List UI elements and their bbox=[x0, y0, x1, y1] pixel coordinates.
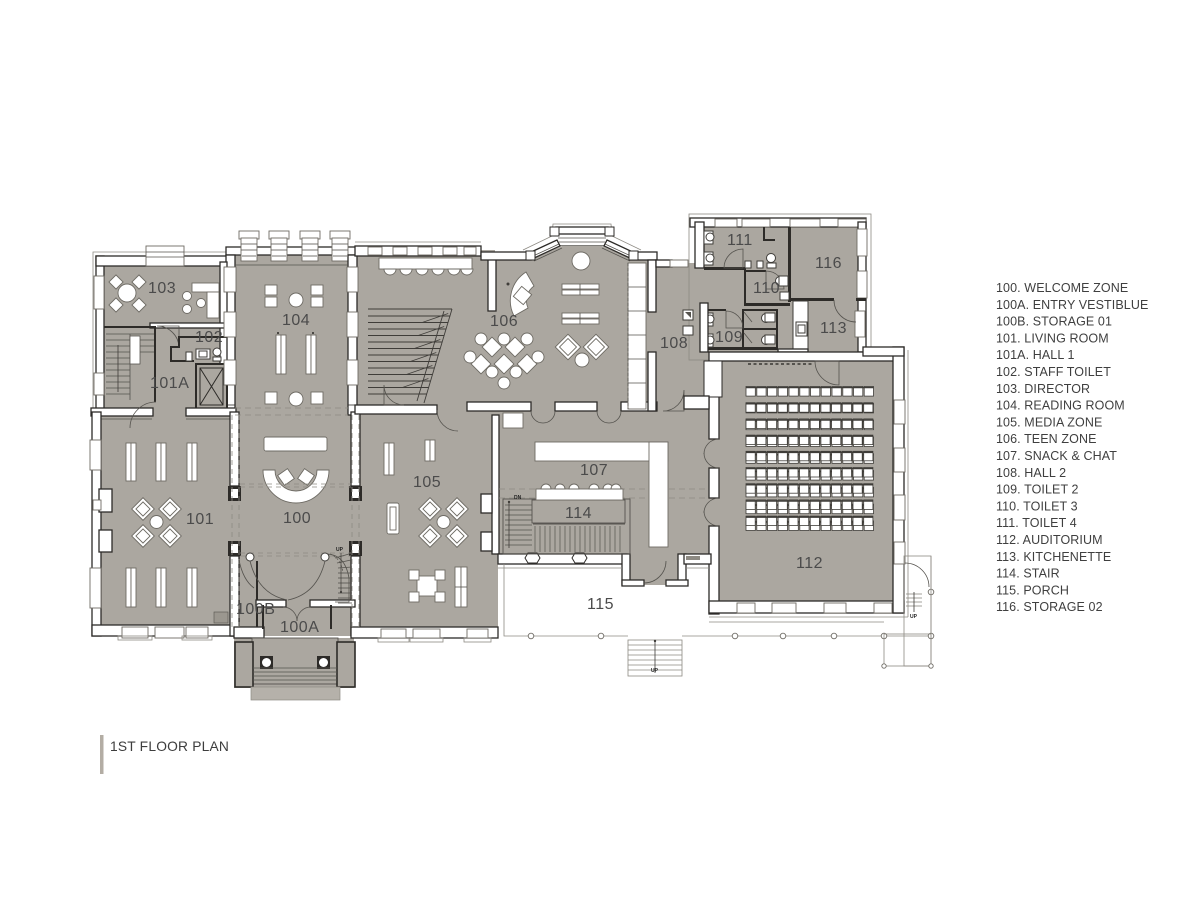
svg-text:104: 104 bbox=[282, 312, 310, 329]
svg-text:100B. STORAGE 01: 100B. STORAGE 01 bbox=[996, 315, 1112, 329]
svg-text:103: 103 bbox=[148, 280, 176, 297]
svg-text:110. TOILET 3: 110. TOILET 3 bbox=[996, 499, 1078, 513]
svg-text:109: 109 bbox=[715, 329, 743, 346]
svg-text:112: 112 bbox=[796, 555, 823, 572]
svg-text:113. KITCHENETTE: 113. KITCHENETTE bbox=[996, 550, 1111, 564]
svg-text:102. STAFF TOILET: 102. STAFF TOILET bbox=[996, 365, 1111, 379]
svg-text:114. STAIR: 114. STAIR bbox=[996, 567, 1060, 581]
svg-text:100A: 100A bbox=[280, 619, 319, 636]
svg-text:100. WELCOME ZONE: 100. WELCOME ZONE bbox=[996, 281, 1128, 295]
svg-text:115: 115 bbox=[587, 596, 614, 613]
svg-text:114: 114 bbox=[565, 505, 592, 522]
svg-text:100B: 100B bbox=[236, 601, 275, 618]
svg-text:111. TOILET 4: 111. TOILET 4 bbox=[996, 516, 1077, 530]
svg-text:106. TEEN ZONE: 106. TEEN ZONE bbox=[996, 432, 1097, 446]
svg-text:UP: UP bbox=[910, 614, 918, 620]
svg-text:107. SNACK & CHAT: 107. SNACK & CHAT bbox=[996, 449, 1117, 463]
svg-text:113: 113 bbox=[820, 320, 847, 337]
svg-text:101A: 101A bbox=[150, 375, 189, 392]
svg-text:109. TOILET 2: 109. TOILET 2 bbox=[996, 483, 1079, 497]
svg-text:110: 110 bbox=[753, 280, 780, 297]
svg-text:108. HALL 2: 108. HALL 2 bbox=[996, 466, 1066, 480]
svg-text:116. STORAGE 02: 116. STORAGE 02 bbox=[996, 600, 1103, 614]
svg-text:DN: DN bbox=[514, 495, 522, 501]
svg-text:106: 106 bbox=[490, 313, 518, 330]
svg-text:103. DIRECTOR: 103. DIRECTOR bbox=[996, 382, 1090, 396]
svg-text:116: 116 bbox=[815, 255, 842, 272]
svg-text:100A. ENTRY VESTIBLUE: 100A. ENTRY VESTIBLUE bbox=[996, 298, 1148, 312]
svg-text:111: 111 bbox=[727, 232, 753, 249]
svg-text:108: 108 bbox=[660, 335, 688, 352]
svg-text:100: 100 bbox=[283, 510, 311, 527]
svg-text:102: 102 bbox=[195, 329, 223, 346]
svg-text:105. MEDIA ZONE: 105. MEDIA ZONE bbox=[996, 415, 1102, 429]
svg-text:107: 107 bbox=[580, 462, 608, 479]
svg-text:105: 105 bbox=[413, 474, 441, 491]
svg-text:UP: UP bbox=[651, 668, 659, 674]
svg-text:101. LIVING ROOM: 101. LIVING ROOM bbox=[996, 331, 1109, 345]
svg-text:101A. HALL 1: 101A. HALL 1 bbox=[996, 348, 1075, 362]
svg-text:104. READING ROOM: 104. READING ROOM bbox=[996, 399, 1125, 413]
svg-text:1ST FLOOR PLAN: 1ST FLOOR PLAN bbox=[110, 739, 229, 754]
svg-text:115. PORCH: 115. PORCH bbox=[996, 583, 1069, 597]
svg-text:UP: UP bbox=[336, 547, 344, 553]
svg-text:101: 101 bbox=[186, 511, 214, 528]
svg-text:112. AUDITORIUM: 112. AUDITORIUM bbox=[996, 533, 1103, 547]
